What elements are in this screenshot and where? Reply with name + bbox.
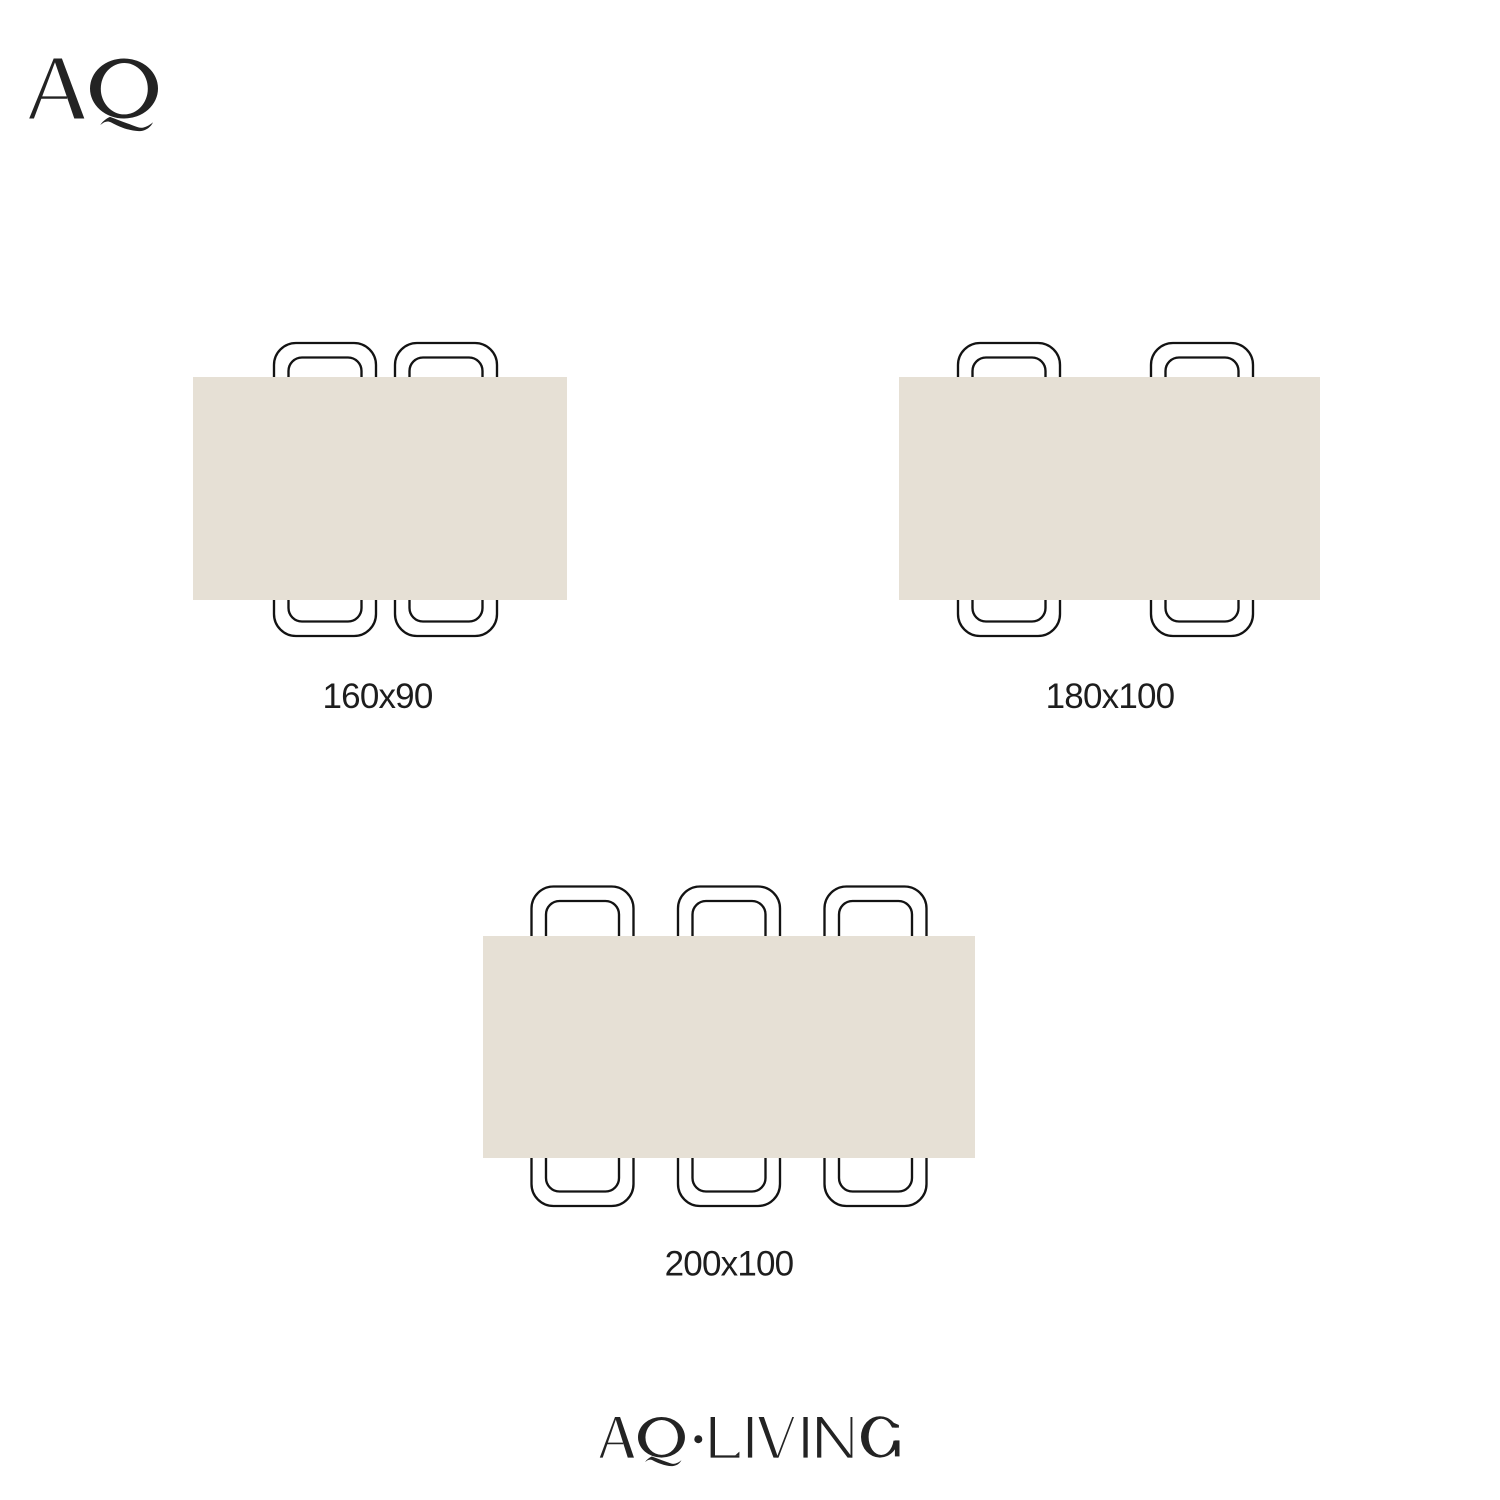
svg-text:200x100: 200x100 xyxy=(665,1245,794,1284)
svg-text:160x90: 160x90 xyxy=(322,677,432,716)
svg-text:180x100: 180x100 xyxy=(1046,677,1175,716)
